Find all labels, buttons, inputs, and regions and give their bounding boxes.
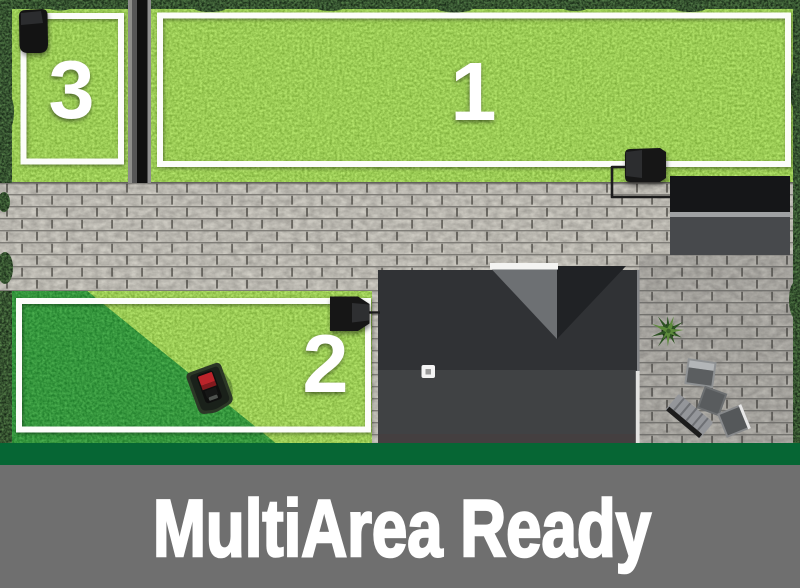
svg-text:3: 3 (48, 43, 94, 136)
svg-text:1: 1 (450, 45, 496, 138)
svg-text:2: 2 (302, 317, 348, 410)
svg-text:MultiArea Ready: MultiArea Ready (153, 484, 652, 574)
